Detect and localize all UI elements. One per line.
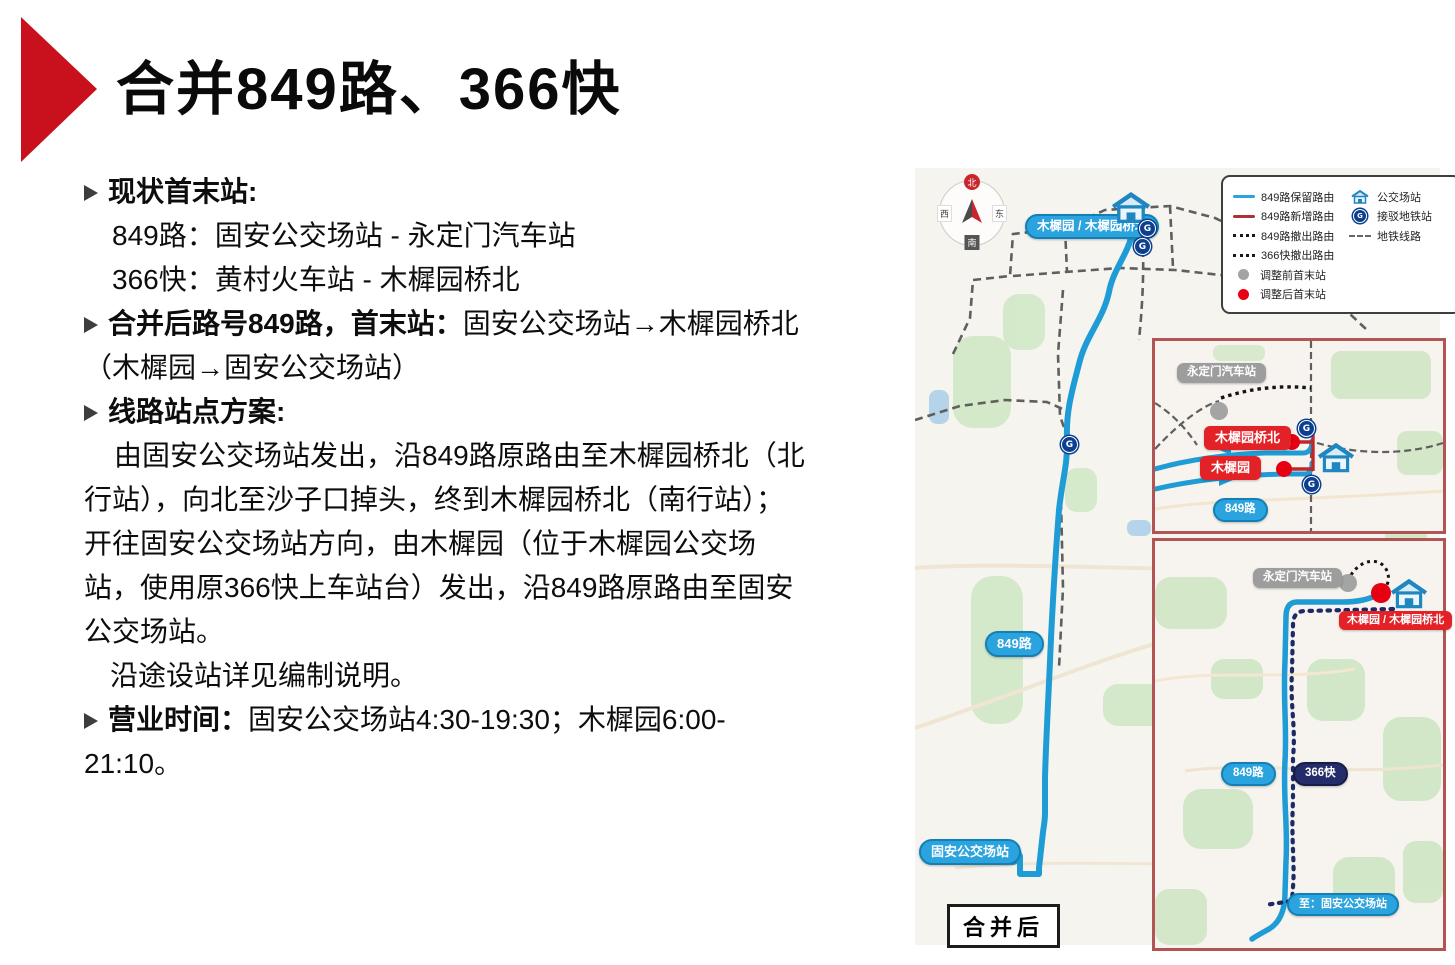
route-label-849-inset1: 849路: [1213, 498, 1268, 522]
metro-icon: [1139, 220, 1156, 237]
legend-item-bus-depot: 公交场站: [1349, 187, 1452, 207]
legend-item-849-removed: 849路撤出路由: [1233, 226, 1349, 246]
metro-icon: [1349, 209, 1371, 223]
legend-item-metro-line: 地铁线路: [1349, 226, 1452, 246]
bus-station-icon: [1349, 190, 1371, 204]
metro-icon: [1134, 238, 1151, 255]
bullet-arrow-icon: [84, 185, 98, 201]
red-arrow-shape: [21, 17, 97, 162]
compass-south: 南: [964, 235, 979, 250]
route-label-849-main: 849路: [985, 631, 1044, 657]
bullet-arrow-icon: [84, 405, 98, 421]
legend-item-terminal-after: 调整后首末站: [1233, 285, 1349, 305]
compass-needle-icon: [958, 197, 986, 227]
terminal-before-dot: [1210, 402, 1228, 420]
stop-plan-note: 沿途设站详见编制说明。: [84, 654, 806, 698]
slide-root: 合并849路、366快 现状首末站: 849路：固安公交场站 - 永定门汽车站 …: [0, 0, 1455, 965]
slide-body-text: 现状首末站: 849路：固安公交场站 - 永定门汽车站 366快：黄村火车站 -…: [84, 170, 806, 786]
map-terrain: [1155, 577, 1443, 945]
route-label-366-inset2: 366快: [1293, 762, 1348, 786]
metro-icon: [1303, 476, 1320, 493]
bus-station-icon: [1390, 579, 1428, 609]
section-stop-plan-heading: 线路站点方案:: [84, 390, 806, 434]
inset-map-corridor: 永定门汽车站 木樨园 / 木樨园桥北 849路 366快 至：固安公交场站: [1152, 538, 1446, 951]
station-label-guan: 固安公交场站: [919, 839, 1021, 865]
legend-item-kept-route: 849路保留路由: [1233, 187, 1349, 207]
after-merge-badge: 合并后: [947, 904, 1060, 948]
stop-plan-paragraph: 由固安公交场站发出，沿849路原路由至木樨园桥北（北行站），向北至沙子口掉头，终…: [84, 434, 806, 654]
station-label-yongdingmen: 永定门汽车站: [1177, 363, 1266, 383]
legend-item-terminal-before: 调整前首末站: [1233, 265, 1349, 285]
route-366-current: 366快：黄村火车站 - 木樨园桥北: [84, 258, 806, 302]
dotted-line-swatch: [1233, 254, 1255, 257]
red-dot-swatch: [1238, 289, 1249, 300]
route-849-removed: [1221, 387, 1311, 398]
section-merged-route: 合并后路号849路，首末站：固安公交场站→木樨园桥北（木樨园→固安公交场站）: [84, 302, 806, 390]
compass-north: 北: [964, 174, 980, 190]
section-service-hours: 营业时间：固安公交场站4:30-19:30；木樨园6:00-21:10。: [84, 698, 806, 786]
station-label-muxiyuan-combined: 木樨园 / 木樨园桥北: [1339, 611, 1452, 630]
inset-map-terminal-detail: 永定门汽车站 木樨园桥北 木樨园 849路: [1152, 338, 1446, 534]
gray-dot-swatch: [1238, 269, 1249, 280]
destination-label-guan: 至：固安公交场站: [1287, 893, 1399, 916]
section-current-terminals-heading: 现状首末站:: [84, 170, 806, 214]
bullet-arrow-icon: [84, 713, 98, 729]
legend-item-metro-station: 接驳地铁站: [1349, 207, 1452, 227]
blue-line-swatch: [1233, 195, 1255, 198]
red-line-swatch: [1233, 215, 1255, 218]
compass-west: 西: [937, 205, 952, 222]
compass-rose: 北 西 东 南: [939, 180, 1005, 246]
legend-item-new-route: 849路新增路由: [1233, 207, 1349, 227]
route-849-current: 849路：固安公交场站 - 永定门汽车站: [84, 214, 806, 258]
terminal-after-dot: [1371, 583, 1391, 603]
page-title: 合并849路、366快: [116, 42, 622, 126]
legend-item-366-removed: 366快撤出路由: [1233, 246, 1349, 266]
metro-icon: [1298, 420, 1315, 437]
terminal-after-dot: [1276, 461, 1292, 477]
route-map: 北 西 东 南 849路保留路由 849路新增路由 849路撤出路由 366快撤…: [915, 168, 1440, 945]
map-legend: 849路保留路由 849路新增路由 849路撤出路由 366快撤出路由 调整前首…: [1221, 175, 1455, 314]
route-label-849-inset2: 849路: [1221, 762, 1276, 786]
dashed-line-swatch: [1349, 235, 1371, 237]
dotted-line-swatch: [1233, 234, 1255, 237]
bus-station-icon: [1317, 443, 1355, 473]
metro-icon: [1061, 436, 1078, 453]
red-arrow-icon: [21, 17, 101, 167]
station-label-muxiyuan-qiaobei: 木樨园桥北: [1204, 426, 1291, 450]
bullet-arrow-icon: [84, 317, 98, 333]
station-label-yongdingmen: 永定门汽车站: [1253, 568, 1342, 588]
station-label-muxiyuan: 木樨园: [1200, 456, 1261, 480]
compass-east: 东: [992, 205, 1007, 222]
